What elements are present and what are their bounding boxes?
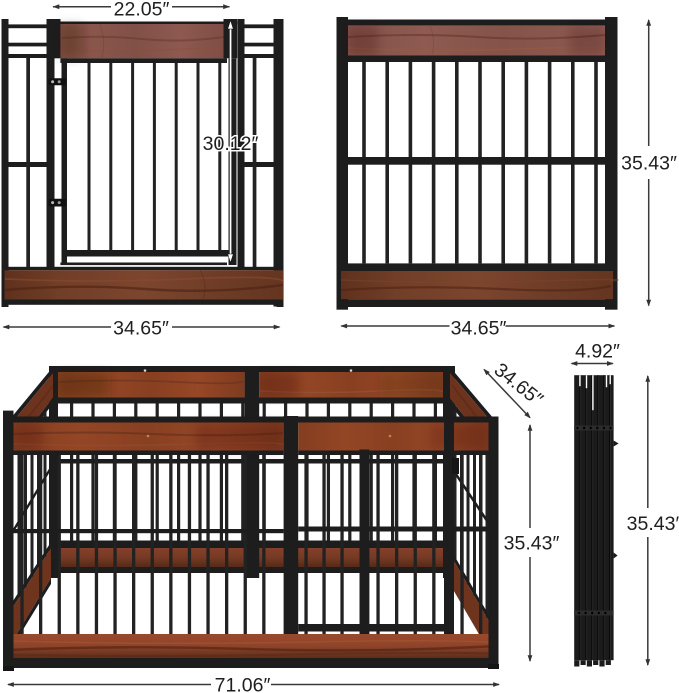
svg-text:34.65″: 34.65″ xyxy=(451,317,507,339)
svg-text:34.65″: 34.65″ xyxy=(113,318,169,340)
svg-text:4.92″: 4.92″ xyxy=(575,341,620,363)
svg-text:35.43″: 35.43″ xyxy=(504,533,560,555)
svg-text:71.06″: 71.06″ xyxy=(215,675,271,693)
svg-text:35.43″: 35.43″ xyxy=(621,153,677,175)
svg-text:22.05″: 22.05″ xyxy=(114,0,170,21)
svg-text:30.12″: 30.12″ xyxy=(203,133,259,155)
svg-text:35.43″: 35.43″ xyxy=(627,513,679,535)
